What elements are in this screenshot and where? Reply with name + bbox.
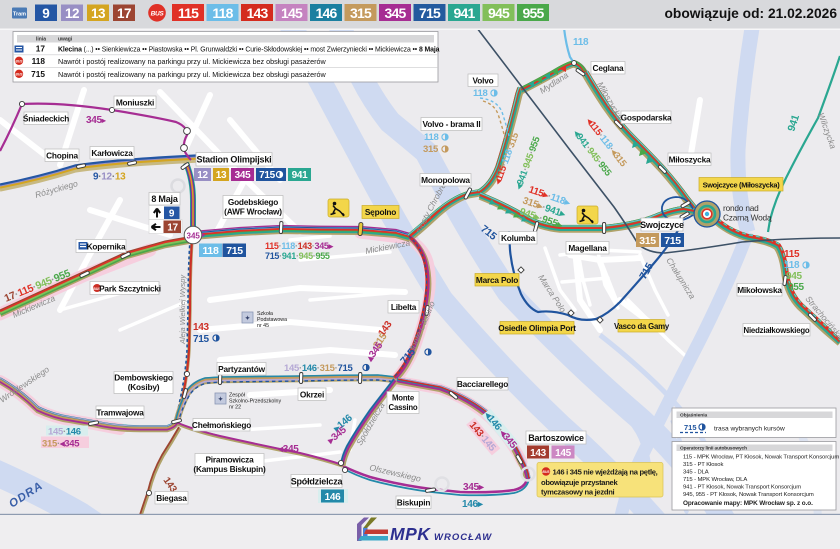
svg-text:715: 715 bbox=[684, 423, 697, 432]
svg-text:345: 345 bbox=[187, 232, 201, 241]
svg-text:Biskupin: Biskupin bbox=[397, 498, 431, 508]
svg-text:9·12·13: 9·12·13 bbox=[93, 172, 126, 183]
svg-text:715·941·945·955: 715·941·945·955 bbox=[265, 251, 330, 261]
svg-text:Marca Polo: Marca Polo bbox=[476, 275, 518, 285]
svg-text:315·◂345: 315·◂345 bbox=[42, 439, 80, 450]
svg-text:Bacciarellego: Bacciarellego bbox=[457, 379, 508, 389]
svg-text:Vasco da Gamy: Vasco da Gamy bbox=[614, 322, 670, 331]
svg-text:143: 143 bbox=[530, 448, 547, 459]
svg-text:Volvo: Volvo bbox=[473, 76, 494, 86]
svg-text:Partyzantów: Partyzantów bbox=[218, 364, 265, 374]
svg-text:115: 115 bbox=[784, 249, 800, 260]
svg-text:118: 118 bbox=[212, 5, 233, 21]
svg-text:315: 315 bbox=[639, 235, 656, 247]
svg-text:12: 12 bbox=[197, 170, 208, 181]
svg-text:315: 315 bbox=[423, 144, 439, 155]
svg-text:118: 118 bbox=[784, 260, 800, 271]
svg-text:146: 146 bbox=[316, 5, 338, 21]
svg-text:345▸: 345▸ bbox=[86, 115, 107, 126]
svg-text:941: 941 bbox=[292, 170, 309, 181]
svg-text:945, 955 - PT Kłosok, Nowak T: 945, 955 - PT Kłosok, Nowak Transport Ko… bbox=[683, 492, 814, 498]
svg-text:Cassino: Cassino bbox=[389, 403, 418, 412]
svg-text:Ceglana: Ceglana bbox=[593, 63, 624, 73]
svg-text:trasa wybranych kursów: trasa wybranych kursów bbox=[714, 426, 785, 433]
svg-text:WROCŁAW: WROCŁAW bbox=[434, 532, 492, 543]
svg-text:715: 715 bbox=[226, 245, 243, 257]
svg-text:345: 345 bbox=[385, 5, 407, 21]
svg-text:715: 715 bbox=[419, 5, 441, 21]
svg-text:Swojczyce (Miłoszycka): Swojczyce (Miłoszycka) bbox=[703, 181, 781, 190]
svg-text:17: 17 bbox=[167, 223, 178, 234]
svg-text:118: 118 bbox=[573, 37, 589, 48]
svg-text:941: 941 bbox=[454, 5, 476, 21]
svg-text:Monopolowa: Monopolowa bbox=[421, 175, 470, 185]
svg-text:9: 9 bbox=[169, 209, 175, 220]
svg-text:Chopina: Chopina bbox=[46, 151, 78, 161]
svg-text:Biegasa: Biegasa bbox=[156, 493, 187, 503]
svg-text:nr 45: nr 45 bbox=[257, 323, 269, 329]
svg-text:315: 315 bbox=[350, 5, 372, 21]
svg-text:Osiedle Olimpia Port: Osiedle Olimpia Port bbox=[498, 323, 576, 333]
svg-text:146: 146 bbox=[325, 492, 342, 503]
svg-text:145·146: 145·146 bbox=[48, 427, 81, 438]
svg-text:17: 17 bbox=[36, 44, 46, 54]
svg-text:118: 118 bbox=[202, 245, 218, 257]
svg-text:Godebskiego: Godebskiego bbox=[228, 197, 278, 207]
svg-text:955: 955 bbox=[523, 5, 545, 21]
svg-text:✦: ✦ bbox=[245, 315, 250, 322]
svg-text:Chełmońskiego: Chełmońskiego bbox=[192, 420, 251, 430]
svg-text:Niedziałkowskiego: Niedziałkowskiego bbox=[744, 326, 810, 335]
svg-text:115 - MPK Wrocław, PT Kłosok,: 115 - MPK Wrocław, PT Kłosok, Nowak Tran… bbox=[683, 455, 839, 461]
svg-text:tymczasowy na jezdni: tymczasowy na jezdni bbox=[541, 488, 615, 497]
svg-text:Libelta: Libelta bbox=[391, 302, 417, 312]
svg-text:Sępolno: Sępolno bbox=[365, 207, 396, 217]
svg-text:715: 715 bbox=[259, 170, 276, 181]
svg-text:146▸: 146▸ bbox=[462, 499, 484, 510]
svg-text:Magellana: Magellana bbox=[568, 243, 607, 253]
svg-text:Swojczyce: Swojczyce bbox=[640, 220, 684, 230]
svg-text:Moniuszki: Moniuszki bbox=[116, 98, 154, 108]
svg-text:Nawrót i postój realizowany na: Nawrót i postój realizowany na parkingu … bbox=[58, 70, 326, 79]
svg-text:143: 143 bbox=[193, 322, 210, 333]
svg-text:Kopernika: Kopernika bbox=[87, 242, 126, 252]
svg-text:BUS: BUS bbox=[542, 470, 550, 474]
svg-text:Tramwajowa: Tramwajowa bbox=[96, 408, 144, 418]
svg-text:Aleja Wielkiej Wyspy: Aleja Wielkiej Wyspy bbox=[178, 274, 187, 345]
svg-text:Gospodarska: Gospodarska bbox=[621, 113, 672, 123]
svg-text:146 i 345 nie wjeżdżają na pęt: 146 i 345 nie wjeżdżają na pętlę, bbox=[553, 468, 658, 477]
svg-text:MPK: MPK bbox=[390, 524, 431, 544]
svg-text:BUS: BUS bbox=[151, 10, 165, 17]
svg-text:Stadion Olimpijski: Stadion Olimpijski bbox=[197, 155, 272, 165]
svg-text:Park Szczytnicki: Park Szczytnicki bbox=[99, 284, 161, 294]
svg-text:Piramowicza: Piramowicza bbox=[205, 455, 254, 465]
svg-text:Opracowanie mapy: MPK Wrocław: Opracowanie mapy: MPK Wrocław sp. z o.o. bbox=[683, 500, 813, 507]
svg-text:nr 22: nr 22 bbox=[229, 405, 241, 411]
svg-text:715: 715 bbox=[664, 235, 681, 247]
svg-text:(AWF Wrocław): (AWF Wrocław) bbox=[224, 207, 282, 217]
svg-text:Volvo - brama II: Volvo - brama II bbox=[423, 119, 481, 129]
svg-text:BUS: BUS bbox=[15, 60, 23, 64]
svg-text:✦: ✦ bbox=[218, 396, 223, 403]
svg-text:linia: linia bbox=[36, 37, 46, 43]
svg-text:Okrzei: Okrzei bbox=[300, 390, 324, 400]
svg-text:Bartoszowice: Bartoszowice bbox=[528, 433, 584, 443]
svg-text:13: 13 bbox=[216, 170, 227, 181]
svg-text:118: 118 bbox=[424, 132, 438, 143]
svg-text:115·118·143·345▸: 115·118·143·345▸ bbox=[265, 241, 334, 251]
svg-text:Mikołowska: Mikołowska bbox=[737, 285, 782, 295]
svg-text:715 - MPK Wrocław, DLA: 715 - MPK Wrocław, DLA bbox=[683, 477, 747, 483]
svg-text:145: 145 bbox=[281, 5, 303, 21]
svg-text:Spółdzielcza: Spółdzielcza bbox=[291, 477, 344, 487]
svg-text:Nawrót i postój realizowany na: Nawrót i postój realizowany na parkingu … bbox=[58, 57, 326, 66]
svg-text:Tram: Tram bbox=[13, 12, 26, 18]
svg-text:715: 715 bbox=[193, 334, 210, 345]
svg-text:◂345: ◂345 bbox=[277, 444, 299, 455]
svg-text:145: 145 bbox=[555, 448, 572, 459]
svg-text:Śniadeckich: Śniadeckich bbox=[23, 113, 69, 124]
svg-text:Objaśnienia: Objaśnienia bbox=[680, 413, 708, 419]
svg-text:17: 17 bbox=[117, 6, 131, 21]
svg-text:Dembowskiego: Dembowskiego bbox=[114, 373, 173, 383]
svg-text:12: 12 bbox=[65, 6, 79, 21]
svg-text:obowiązuje przystanek: obowiązuje przystanek bbox=[541, 478, 618, 487]
svg-text:Monte: Monte bbox=[392, 394, 415, 403]
svg-text:345: 345 bbox=[235, 170, 252, 181]
svg-text:145·146·315·715: 145·146·315·715 bbox=[284, 363, 353, 374]
svg-text:945: 945 bbox=[786, 271, 803, 282]
svg-text:Miłoszycka: Miłoszycka bbox=[669, 155, 711, 165]
svg-text:obowiązuje od: 21.02.2026: obowiązuje od: 21.02.2026 bbox=[664, 6, 837, 21]
svg-text:955: 955 bbox=[788, 282, 805, 293]
svg-text:715: 715 bbox=[31, 69, 45, 79]
svg-text:8 Maja: 8 Maja bbox=[151, 194, 179, 204]
svg-text:945: 945 bbox=[488, 5, 510, 21]
svg-text:rondo nad: rondo nad bbox=[723, 203, 759, 213]
svg-text:Kolumba: Kolumba bbox=[501, 233, 536, 243]
svg-text:115: 115 bbox=[178, 5, 199, 21]
svg-text:Czarną Wodą: Czarną Wodą bbox=[723, 213, 772, 223]
svg-text:Operatorzy linii autobusowych: Operatorzy linii autobusowych bbox=[680, 446, 747, 452]
svg-text:345▸: 345▸ bbox=[463, 482, 485, 493]
svg-text:941 - PT Kłosok, Nowak Transpo: 941 - PT Kłosok, Nowak Transport Konsorc… bbox=[683, 485, 801, 491]
svg-text:315 - PT Kłosok: 315 - PT Kłosok bbox=[683, 462, 723, 468]
svg-text:(Kosiby): (Kosiby) bbox=[128, 382, 160, 392]
svg-text:143: 143 bbox=[247, 5, 269, 21]
svg-text:(Kampus Biskupin): (Kampus Biskupin) bbox=[193, 464, 266, 474]
svg-text:118: 118 bbox=[32, 56, 46, 66]
svg-text:345 - DLA: 345 - DLA bbox=[683, 470, 709, 476]
svg-text:13: 13 bbox=[91, 6, 106, 21]
svg-text:9: 9 bbox=[42, 6, 50, 21]
svg-text:Klecina (...) •• Sienkiewicza: Klecina (...) •• Sienkiewicza •• Piastow… bbox=[58, 47, 440, 54]
svg-text:BUS: BUS bbox=[15, 73, 23, 77]
svg-text:uwagi: uwagi bbox=[58, 37, 73, 43]
svg-text:Karłowicza: Karłowicza bbox=[91, 148, 133, 158]
